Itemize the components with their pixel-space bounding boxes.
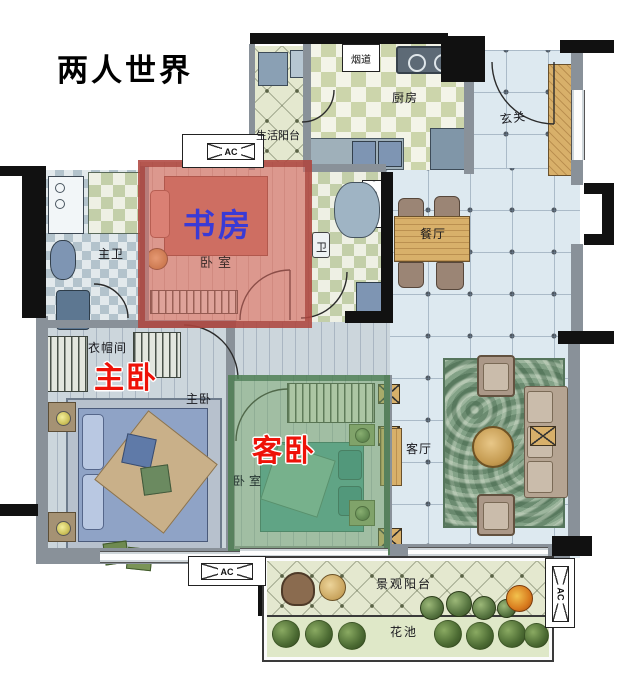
balcony-washbasin bbox=[258, 52, 288, 86]
dining-chair bbox=[434, 196, 460, 218]
nightstand bbox=[48, 512, 76, 542]
dining-label: 餐厅 bbox=[420, 228, 446, 240]
lamp-icon bbox=[56, 521, 71, 536]
knob-icon bbox=[55, 199, 65, 209]
blanket-pillow bbox=[121, 433, 157, 469]
kitchen-label: 厨房 bbox=[392, 92, 418, 104]
cloakroom-wardrobe bbox=[42, 336, 88, 392]
study-annotation: 书房 bbox=[183, 209, 253, 241]
wall bbox=[571, 244, 583, 334]
study-highlight-overlay bbox=[138, 160, 312, 328]
flower-bed-label: 花池 bbox=[390, 626, 418, 638]
dining-chair bbox=[436, 262, 464, 290]
outer-wall bbox=[584, 234, 614, 245]
balcony-plant bbox=[420, 596, 444, 620]
ac-unit-right: AC bbox=[545, 558, 575, 628]
balcony-plant bbox=[472, 596, 496, 620]
flue-label: 烟道 bbox=[351, 51, 371, 66]
armchair bbox=[477, 355, 515, 397]
study-bedroom-label: 卧室 bbox=[200, 256, 236, 269]
master-bath-label: 主卫 bbox=[98, 248, 124, 260]
guest-bedroom-label: 卧室 bbox=[233, 475, 265, 487]
bath-label: 卫 bbox=[316, 243, 328, 254]
outer-wall bbox=[250, 33, 448, 44]
nightstand bbox=[48, 402, 76, 432]
headboard-pillow bbox=[82, 414, 104, 470]
balcony-table bbox=[319, 574, 346, 601]
flower-bed-bush bbox=[466, 622, 494, 650]
wall bbox=[306, 164, 386, 172]
guest-annotation: 客卧 bbox=[252, 437, 316, 467]
outer-wall bbox=[441, 36, 485, 82]
bathroom-sink bbox=[50, 240, 76, 280]
shower-area bbox=[88, 172, 142, 234]
coffee-table bbox=[472, 426, 514, 468]
knob-icon bbox=[55, 183, 65, 193]
washing-machine bbox=[48, 176, 84, 234]
orange-plant bbox=[506, 585, 533, 612]
life-balcony-label: 生活阳台 bbox=[256, 131, 300, 142]
outer-wall bbox=[0, 166, 24, 176]
cloakroom-label: 衣帽间 bbox=[88, 342, 127, 354]
ac-unit-bottom: AC bbox=[188, 556, 266, 586]
outer-wall bbox=[22, 166, 46, 318]
flower-bed-bush bbox=[498, 620, 526, 648]
balcony-chair bbox=[281, 572, 315, 606]
burner-icon bbox=[408, 54, 426, 72]
floor-plan: AC AC AC 烟道 生活阳台 厨房 玄关 餐厅 主卫 卫 卧室 衣帽间 主卧… bbox=[0, 0, 620, 686]
shower-stall bbox=[334, 182, 380, 238]
flue-box: 烟道 bbox=[342, 44, 380, 72]
wall bbox=[36, 316, 48, 556]
armchair bbox=[477, 494, 515, 536]
wall bbox=[381, 172, 393, 323]
flower-bed-bush bbox=[434, 620, 462, 648]
lamp-icon bbox=[56, 411, 71, 426]
flower-bed-bush bbox=[338, 622, 366, 650]
plan-title: 两人世界 bbox=[57, 55, 193, 86]
master-bedroom-small-label: 主卧 bbox=[186, 393, 212, 405]
fridge bbox=[430, 128, 466, 170]
ac-label: AC bbox=[556, 585, 566, 604]
ac-label: AC bbox=[222, 147, 241, 157]
wall bbox=[464, 80, 474, 174]
outer-wall bbox=[552, 536, 592, 556]
wall bbox=[303, 42, 311, 172]
balcony-plant bbox=[446, 591, 472, 617]
flower-bed-bush bbox=[305, 620, 333, 648]
side-table bbox=[530, 426, 556, 446]
outer-wall bbox=[0, 504, 38, 516]
dining-chair bbox=[398, 262, 424, 288]
blanket-pillow bbox=[140, 464, 172, 496]
wall bbox=[568, 344, 580, 540]
view-balcony-label: 景观阳台 bbox=[376, 578, 432, 590]
window bbox=[571, 90, 585, 160]
entry-label: 玄关 bbox=[499, 110, 526, 126]
outer-wall bbox=[560, 40, 614, 53]
corridor-floor bbox=[230, 322, 390, 380]
ac-unit-top: AC bbox=[182, 134, 264, 168]
flower-bed-bush bbox=[272, 620, 300, 648]
master-annotation: 主卧 bbox=[94, 364, 158, 394]
ac-label: AC bbox=[218, 567, 237, 577]
outer-wall bbox=[558, 331, 614, 344]
living-label: 客厅 bbox=[406, 443, 432, 455]
